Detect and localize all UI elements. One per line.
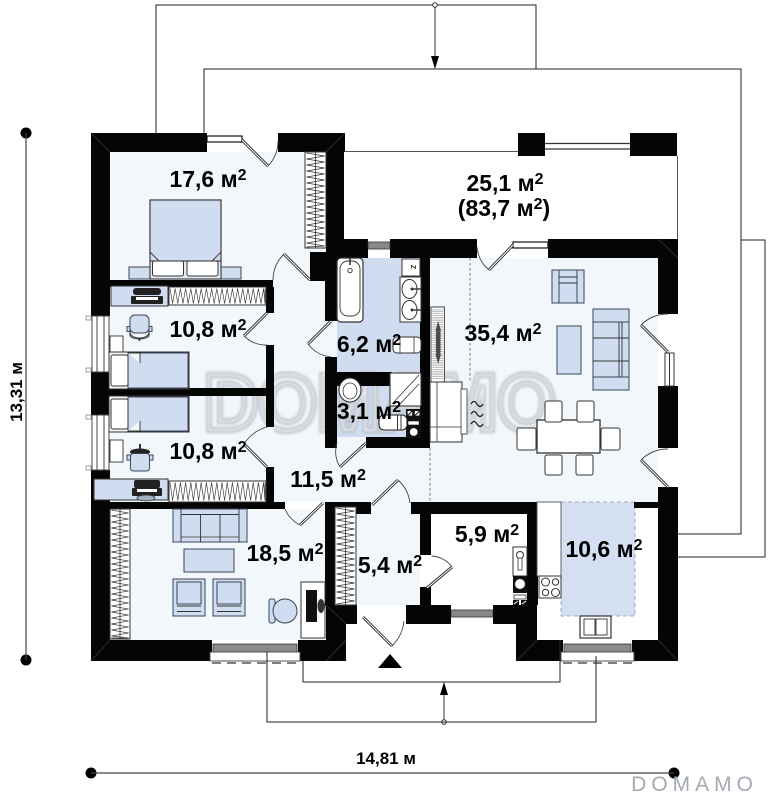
svg-text:5,9 м2: 5,9 м2 [455,521,519,547]
svg-text:3,1 м2: 3,1 м2 [337,398,401,424]
svg-text:11,5 м2: 11,5 м2 [290,466,366,492]
svg-text:17,6 м2: 17,6 м2 [169,166,246,192]
svg-text:10,8 м2: 10,8 м2 [169,316,246,342]
svg-text:6,2 м2: 6,2 м2 [337,331,401,357]
svg-text:25,1 м2: 25,1 м2 [466,170,543,196]
svg-text:10,8 м2: 10,8 м2 [169,438,246,464]
svg-text:35,4 м2: 35,4 м2 [464,320,541,346]
svg-text:14,81 м: 14,81 м [356,749,416,768]
svg-text:13,31 м: 13,31 м [7,362,26,422]
svg-text:z: z [409,265,419,270]
svg-text:5,4 м2: 5,4 м2 [358,552,422,578]
svg-text:DOMAMO: DOMAMO [631,773,758,796]
svg-text:18,5 м2: 18,5 м2 [246,540,323,566]
svg-text:10,6 м2: 10,6 м2 [565,536,642,562]
